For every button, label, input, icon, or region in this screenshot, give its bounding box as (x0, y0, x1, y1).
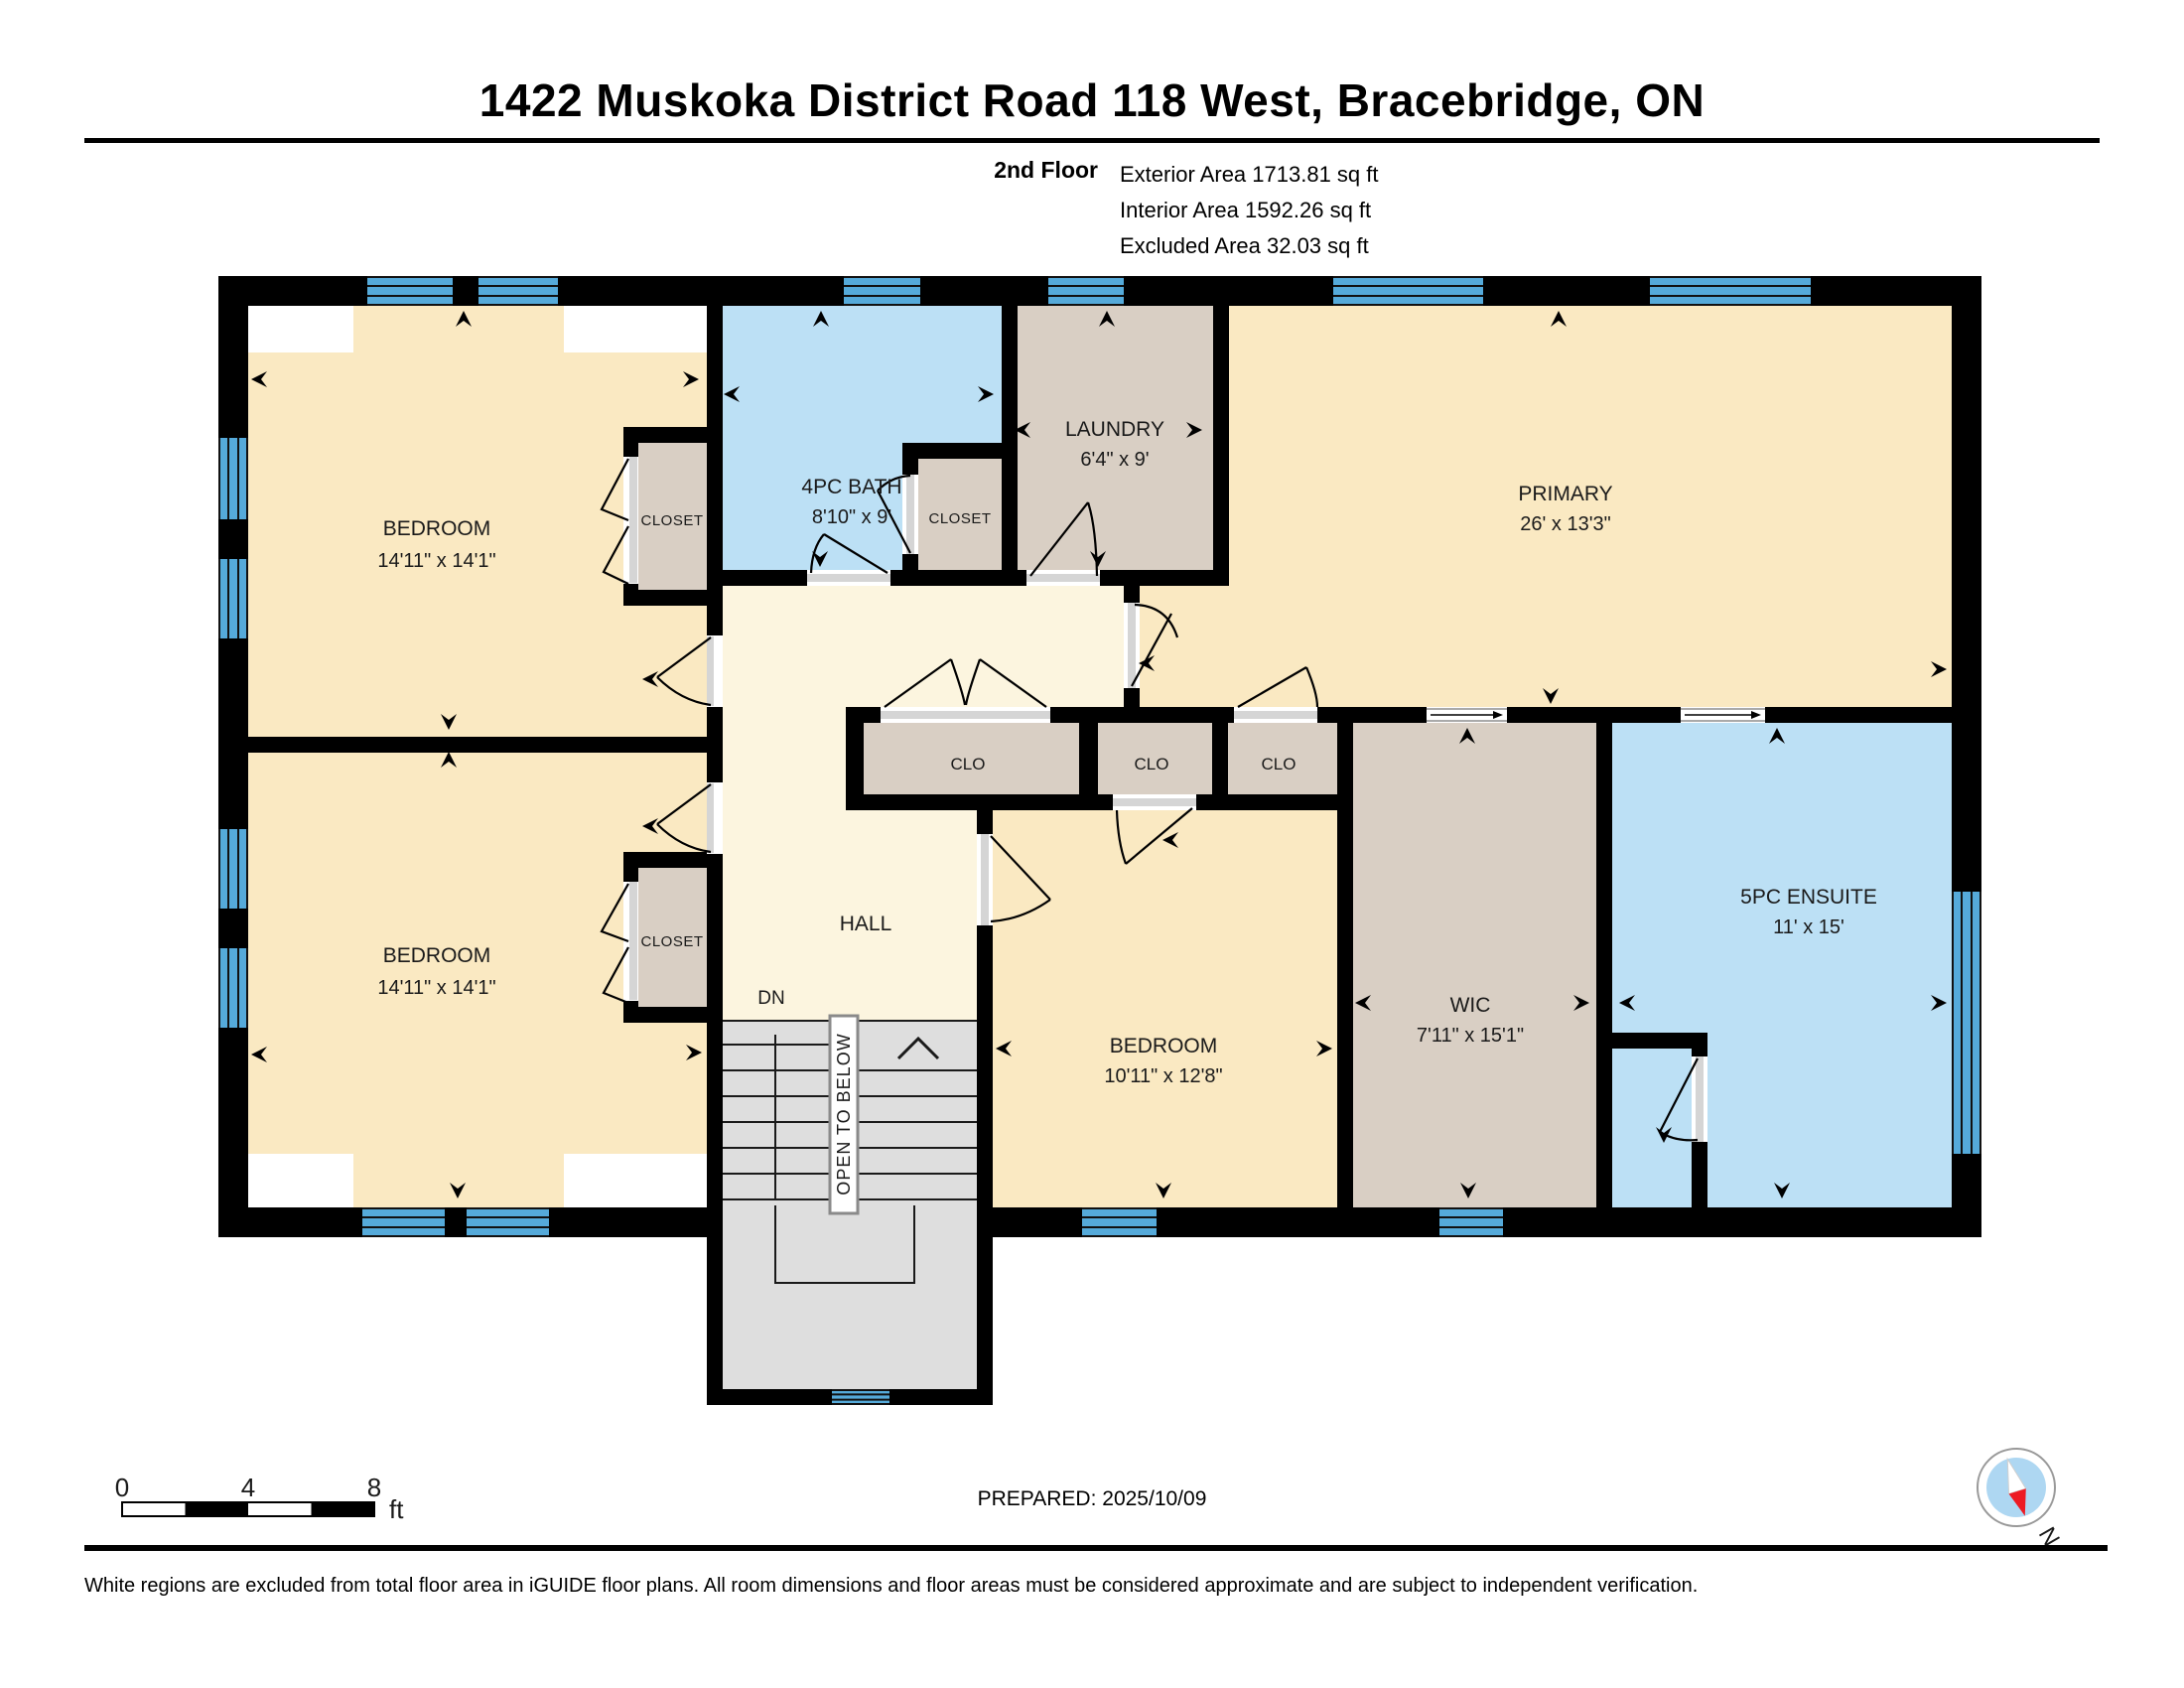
wic-floor (1353, 723, 1596, 1207)
floor-plan-page: 1422 Muskoka District Road 118 West, Bra… (0, 0, 2184, 1688)
room-label-primary: PRIMARY (1518, 483, 1612, 505)
window (1650, 276, 1811, 306)
room-label-hall: HALL (840, 913, 892, 935)
door-sill (1113, 798, 1196, 806)
window (1082, 1207, 1157, 1237)
door-sill (629, 882, 637, 1000)
room-dims-bedroom-mid: 10'11" x 12'8" (1104, 1065, 1222, 1087)
room-label-wic: WIC (1450, 994, 1491, 1017)
hall-floor (723, 586, 1124, 707)
wall-segment (846, 794, 1353, 810)
door-sill (1026, 574, 1100, 582)
cased-opening-line (1681, 720, 1765, 722)
window (1952, 892, 1981, 1154)
cased-opening-line (1427, 708, 1507, 710)
excluded-region (248, 306, 353, 352)
room-label-clo-1: CLO (951, 755, 986, 774)
room-label-closet-bl: CLOSET (640, 933, 703, 950)
room-label-clo-2: CLO (1135, 755, 1169, 774)
cased-opening-line (1681, 708, 1765, 710)
stairs-down-label: DN (757, 988, 784, 1009)
wall-segment (846, 707, 864, 810)
room-label-ensuite: 5PC ENSUITE (1740, 886, 1877, 909)
window (478, 276, 558, 306)
door-sill (707, 636, 714, 706)
open-to-below-label: OPEN TO BELOW (834, 1033, 854, 1195)
wall-segment (218, 1207, 707, 1237)
door-sill (981, 834, 989, 925)
window (844, 276, 920, 306)
window (832, 1389, 889, 1405)
window (467, 1207, 549, 1237)
window (218, 948, 248, 1028)
window (1333, 276, 1483, 306)
window (367, 276, 453, 306)
room-label-closet-tl: CLOSET (640, 512, 703, 529)
prepared-date: PREPARED: 2025/10/09 (0, 1487, 2184, 1511)
room-label-bedroom-mid: BEDROOM (1110, 1035, 1218, 1057)
door-sill (1128, 603, 1136, 688)
room-dims-bedroom-tl: 14'11" x 14'1" (377, 550, 495, 572)
bedroom-mid-floor (993, 810, 1337, 1207)
wall-segment (1212, 707, 1228, 810)
wall-segment (707, 570, 1229, 586)
primary-floor (1140, 306, 1952, 707)
excluded-region (248, 1154, 353, 1207)
window (1439, 1207, 1503, 1237)
wall-segment (902, 443, 1018, 459)
room-label-closet-mid: CLOSET (928, 510, 991, 527)
room-dims-bedroom-bl: 14'11" x 14'1" (377, 977, 495, 999)
disclaimer-text: White regions are excluded from total fl… (84, 1575, 1772, 1598)
room-label-clo-3: CLO (1262, 755, 1297, 774)
wall-segment (218, 737, 723, 753)
room-label-laundry: LAUNDRY (1065, 418, 1164, 441)
room-dims-wic: 7'11" x 15'1" (1417, 1025, 1524, 1047)
cased-opening-line (1427, 720, 1507, 722)
window (218, 438, 248, 519)
door-sill (629, 457, 637, 583)
door-sill (1696, 1056, 1704, 1142)
window (218, 559, 248, 638)
wall-segment (1213, 276, 1229, 586)
door-sill (1234, 711, 1317, 719)
door-sill (707, 783, 714, 853)
room-dims-ensuite: 11' x 15' (1773, 916, 1844, 938)
wall-segment (1002, 276, 1018, 586)
wall-segment (218, 276, 248, 1237)
room-dims-primary: 26' x 13'3" (1520, 513, 1610, 535)
window (1048, 276, 1124, 306)
room-dims-laundry: 6'4" x 9' (1080, 449, 1149, 471)
wall-segment (1612, 1033, 1707, 1049)
door-sill (906, 475, 914, 554)
wall-segment (1337, 707, 1353, 1207)
door-sill (807, 574, 890, 582)
hall-floor (723, 707, 846, 810)
wall-segment (1596, 723, 1612, 1207)
room-label-bedroom-tl: BEDROOM (383, 517, 491, 540)
excluded-region (564, 1154, 707, 1207)
room-dims-bath: 8'10" x 9' (812, 506, 891, 528)
wall-segment (1079, 707, 1098, 810)
room-label-bath: 4PC BATH (801, 476, 901, 498)
floor-plan-canvas: BEDROOM 14'11" x 14'1" BEDROOM 14'11" x … (0, 0, 2184, 1688)
window (362, 1207, 445, 1237)
window (218, 829, 248, 909)
door-sill (881, 711, 1050, 719)
room-label-bedroom-bl: BEDROOM (383, 944, 491, 967)
footer-divider (84, 1545, 2108, 1551)
excluded-region (564, 306, 707, 352)
